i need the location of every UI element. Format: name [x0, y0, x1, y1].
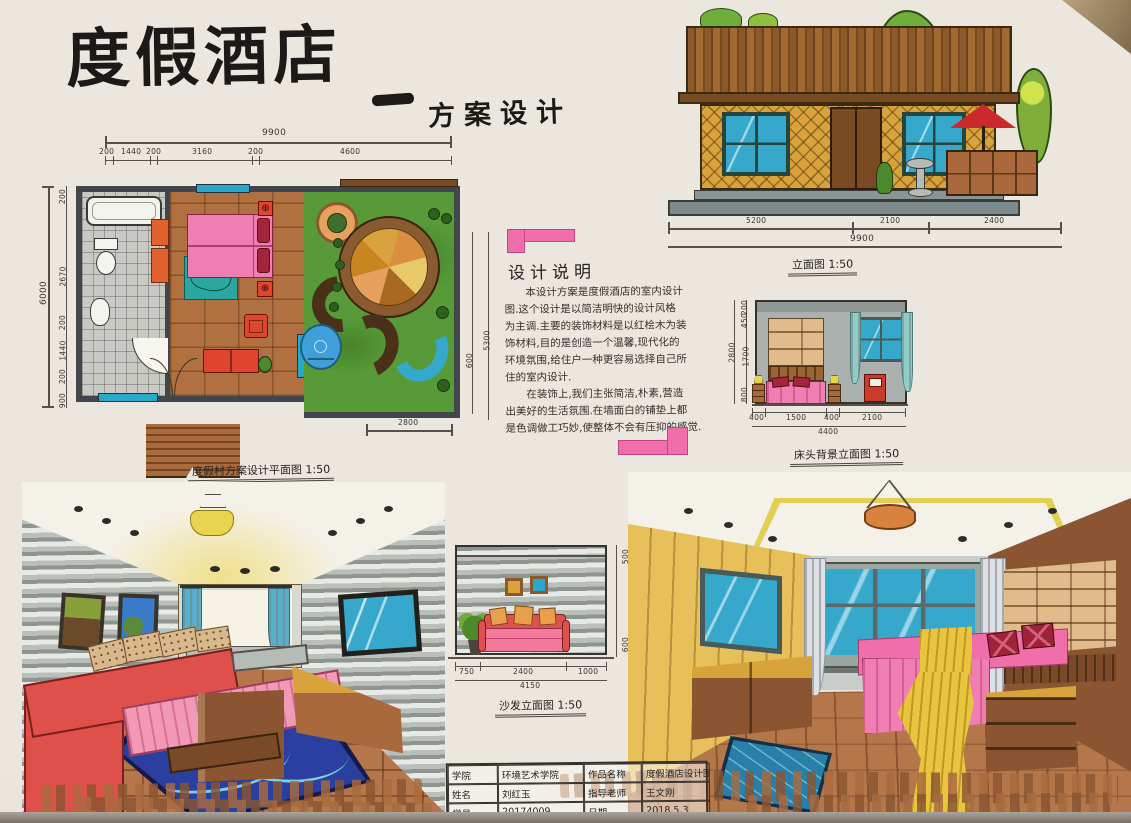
bedelev-floor-line	[752, 404, 908, 406]
ceiling-spotlight	[130, 530, 139, 536]
notes-line: 饰材料,目的是创造一个温馨,现代化的	[505, 334, 710, 353]
bedelev-dim: 450	[740, 313, 749, 328]
page-title: 度假酒店	[65, 4, 343, 101]
elev-window	[722, 112, 790, 176]
bedelev-dim-left-total: 2800	[728, 342, 737, 362]
elev-dim: 2400	[984, 216, 1004, 225]
tick	[905, 408, 906, 417]
sofaelev-sofa-seat	[482, 628, 568, 652]
ceiling-spotlight	[328, 530, 337, 536]
plan-dim: 2800	[398, 418, 418, 427]
elev-dim-total-line	[668, 246, 1062, 248]
bedelev-dim: 2100	[862, 413, 882, 422]
garden-bush	[428, 208, 440, 220]
tick	[113, 156, 114, 165]
plan-dim: 4600	[340, 147, 360, 156]
bed-pillow	[257, 248, 270, 273]
plan-dim: 1440	[121, 147, 141, 156]
title-block-cell: 作品名称	[584, 763, 642, 783]
garden-bush	[329, 302, 339, 312]
tick	[566, 662, 567, 671]
bedelev-dim-total: 4400	[818, 427, 838, 436]
bed-pillow	[1021, 623, 1055, 650]
bedelev-dim: 800	[740, 387, 749, 402]
pond-ripple	[314, 340, 327, 353]
floorplan-window	[196, 184, 250, 193]
bedelev-pillow	[772, 376, 790, 388]
living-curtain-rod	[180, 585, 292, 588]
tick	[1060, 222, 1062, 234]
title-block-cell: 度假酒店设计图	[642, 763, 710, 783]
plan-dim: 2670	[59, 266, 68, 286]
sofaelev-dim: 2400	[513, 667, 533, 676]
plan-dim-bottom-line	[366, 430, 452, 432]
garden-bush	[441, 213, 452, 224]
ceiling-spotlight	[240, 568, 250, 574]
bedelev-bed	[766, 381, 826, 404]
bedelev-dim: 400	[824, 413, 839, 422]
sofaelev-floor-line	[448, 657, 614, 659]
sofaelev-sofa-arm	[562, 620, 570, 652]
elev-fountain-base	[908, 188, 933, 197]
bedelev-caption: 床头背景立面图 1:50	[790, 445, 904, 467]
elev-roof-band	[686, 26, 1012, 94]
tick	[252, 156, 253, 165]
title-block-cell: 指导老师	[584, 782, 642, 802]
sofaelev-caption: 沙发立面图 1:50	[495, 696, 587, 718]
ceiling-spotlight	[1048, 508, 1057, 514]
pendant-lamp	[864, 504, 916, 530]
tick	[150, 156, 151, 165]
tick	[451, 424, 453, 436]
bedroom-low-cabinet	[692, 656, 812, 740]
tick	[42, 406, 54, 408]
title-block-cell: 环境艺术学院	[498, 764, 584, 784]
floorplan-toilet-bowl	[96, 251, 116, 275]
elev-counter	[946, 150, 1038, 196]
title-block-cell: 姓名	[448, 784, 498, 804]
tick	[606, 662, 607, 671]
ceiling-spotlight	[1004, 522, 1013, 528]
floorplan-wardrobe	[151, 248, 169, 283]
notes-line: 环境氛围,给住户一种更容易选择自己所	[505, 351, 710, 370]
floorplan-caption: 度假村方案设计平面图 1:50	[188, 461, 335, 484]
sofaelev-frame	[505, 578, 523, 596]
plan-dim: 5300	[483, 330, 492, 350]
plan-dim-right-outer-line	[488, 232, 489, 420]
page-subtitle: 方案设计	[427, 89, 572, 133]
pond-ripple	[308, 358, 334, 360]
title-block-cell: 学院	[448, 765, 498, 785]
tick	[928, 222, 930, 234]
bedroom-tv	[700, 568, 782, 655]
sofaelev-sofa-arm	[478, 620, 486, 652]
bedroom-dresser	[986, 686, 1076, 772]
bed-fold-line	[253, 215, 255, 277]
bedelev-dim: 1700	[742, 346, 751, 366]
title-block-cell: 刘红玉	[498, 783, 584, 803]
plan-dim-right-inner-line	[472, 232, 473, 414]
ceiling-spotlight	[384, 506, 393, 512]
tick	[259, 156, 260, 165]
bedelev-dim: 1500	[786, 413, 806, 422]
elev-door	[830, 107, 882, 190]
title-dash	[372, 93, 415, 107]
sofaelev-dim: 750	[459, 667, 474, 676]
bedelev-nightstand	[828, 384, 841, 403]
garden-potted-plant	[327, 213, 347, 233]
tick	[451, 156, 452, 165]
tick	[105, 156, 106, 165]
notes-line: 出美好的生活氛围.在墙面白的铺垫上都	[505, 402, 710, 421]
ceiling-spotlight	[74, 506, 83, 512]
plan-dim: 900	[58, 393, 67, 408]
ceiling-spotlight	[102, 518, 111, 524]
bedelev-lamp	[830, 375, 839, 384]
plan-dim: 200	[248, 147, 263, 156]
garden-bush	[333, 238, 343, 248]
elev-dim-seg-line	[668, 228, 1062, 230]
plan-dim: 200	[58, 189, 67, 204]
ceiling-spotlight	[356, 518, 365, 524]
plan-dim: 600	[465, 353, 474, 368]
ceiling-spotlight	[958, 536, 967, 542]
bedelev-window	[858, 317, 904, 362]
tick	[157, 156, 158, 165]
plan-dim-top-total-line	[105, 142, 452, 144]
bedelev-curtain	[901, 312, 913, 392]
sofaelev-dim-right-line	[616, 545, 617, 657]
floorplan-plant	[258, 356, 272, 373]
sofaelev-pillow	[489, 607, 508, 626]
tick	[455, 662, 456, 671]
ceiling-spotlight	[270, 566, 280, 572]
bedelev-stone-panel	[768, 318, 824, 366]
bed-fold-line	[188, 245, 272, 247]
tick	[852, 222, 854, 234]
plan-dim: 200	[99, 147, 114, 156]
bedelev-curtain	[850, 312, 861, 384]
ceiling-spotlight	[768, 536, 777, 542]
garden-bush	[335, 260, 345, 270]
photo-corner-shadow	[1062, 0, 1131, 54]
notes-heading: 设计说明	[508, 257, 596, 284]
elev-dim-total: 9900	[850, 234, 874, 244]
tick	[366, 424, 368, 436]
plan-dim-left-total: 6000	[39, 281, 49, 305]
floorplan-side-table: ⊕	[258, 201, 273, 216]
ceiling-spotlight	[684, 508, 693, 514]
tick	[450, 136, 452, 148]
plan-dim: 200	[146, 147, 161, 156]
armchair-seat-line	[249, 320, 263, 333]
floorplan-wardrobe	[151, 219, 169, 246]
elev-fountain-pedestal	[916, 168, 925, 190]
elev-dim: 2100	[880, 216, 900, 225]
notes-line: 在装饰上,我们主张简洁,朴素,营造	[505, 385, 710, 404]
garden-pond	[300, 324, 342, 370]
plan-dim: 200	[58, 369, 67, 384]
sofaelev-frame	[530, 576, 548, 594]
bedelev-dim: 400	[749, 413, 764, 422]
sofaelev-dim: 1000	[578, 667, 598, 676]
sofaelev-pillow	[513, 605, 534, 626]
notes-line: 住的室内设计.	[505, 368, 710, 387]
garden-bush	[332, 282, 342, 292]
tick	[480, 662, 481, 671]
garden-bush	[436, 306, 449, 319]
notes-body: 本设计方案是度假酒店的室内设计 图.这个设计是以简洁明快的设计风格 为主调.主要…	[504, 283, 710, 438]
tick	[668, 222, 670, 234]
floorplan-toilet-tank	[94, 238, 118, 250]
floorplan-armchair	[244, 314, 268, 338]
notes-pink-accent	[667, 427, 688, 455]
sofaelev-dim-total: 4150	[520, 681, 540, 690]
living-perspective	[22, 482, 445, 823]
tick	[42, 186, 54, 188]
living-picture-frame	[58, 593, 106, 652]
cabinet-niche	[869, 378, 882, 387]
garden-bush	[437, 379, 450, 392]
bedelev-nightstand	[752, 384, 765, 403]
floorplan-sofa	[203, 349, 259, 373]
bedelev-red-cabinet	[864, 374, 886, 402]
notes-line: 为主调.主要的装饰材料是以红桧木为装	[505, 317, 710, 336]
elev-caption: 立面图 1:50	[788, 255, 858, 276]
plan-dim: 200	[58, 315, 67, 330]
bathtub-inner	[92, 202, 156, 220]
ceiling-spotlight	[210, 566, 220, 572]
plan-dim-top-total: 9900	[262, 128, 286, 138]
living-tv	[338, 589, 422, 656]
elev-base	[668, 200, 1020, 216]
bedelev-pillow	[793, 376, 811, 387]
elev-yard-shrub	[876, 162, 893, 194]
presentation-board: 度假酒店 方案设计 9900 200 1440 200 3160 200 460…	[0, 0, 1131, 823]
floorplan-bed	[187, 214, 273, 278]
notes-line: 本设计方案是度假酒店的室内设计	[504, 283, 709, 302]
floorplan-sink	[90, 298, 110, 326]
chandelier-lamp	[190, 510, 234, 536]
bed-runner	[920, 627, 972, 678]
garden-pergola-beam	[340, 179, 458, 187]
title-block-cell: 王文刚	[642, 782, 710, 802]
elev-dim: 5200	[746, 216, 766, 225]
wall-trim-line	[457, 555, 605, 557]
photo-table-edge	[0, 812, 1131, 823]
elev-roof-fascia	[678, 92, 1020, 104]
sofaelev-pillow	[538, 607, 556, 625]
bed-pillow	[986, 630, 1019, 658]
tick	[765, 408, 766, 417]
plan-dim: 3160	[192, 147, 212, 156]
plan-dim: 1440	[59, 340, 68, 360]
bed-pillow	[257, 218, 270, 243]
floorplan-window	[98, 393, 158, 402]
elev-umbrella-pole	[982, 126, 985, 152]
bedelev-lamp	[754, 375, 763, 384]
notes-line: 图.这个设计是以简洁明快的设计风格	[504, 300, 709, 319]
ceiling-spotlight	[724, 522, 733, 528]
floorplan-side-table: ⊕	[257, 281, 273, 297]
notes-pink-accent	[507, 229, 525, 253]
